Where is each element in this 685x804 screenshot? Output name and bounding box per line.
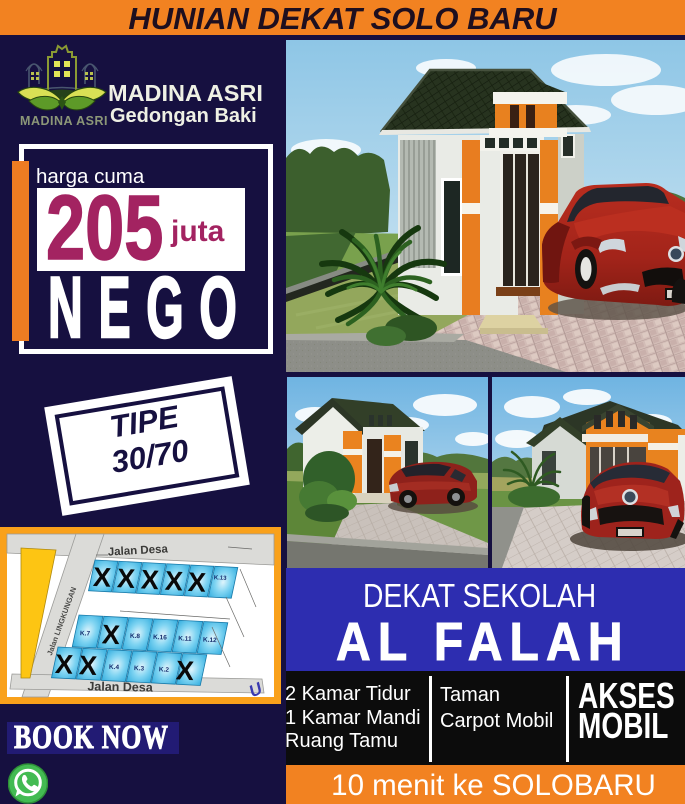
svg-text:X: X bbox=[54, 649, 74, 680]
svg-text:K.11: K.11 bbox=[178, 635, 192, 643]
svg-text:K.12: K.12 bbox=[203, 637, 217, 645]
svg-text:X: X bbox=[101, 619, 121, 650]
svg-text:K.3: K.3 bbox=[134, 665, 145, 673]
svg-text:X: X bbox=[116, 563, 136, 594]
svg-text:K.4: K.4 bbox=[109, 664, 120, 672]
svg-text:K.16: K.16 bbox=[153, 634, 167, 642]
svg-text:K.7: K.7 bbox=[80, 630, 91, 638]
svg-text:X: X bbox=[187, 567, 207, 598]
svg-text:X: X bbox=[92, 562, 112, 593]
svg-text:K.8: K.8 bbox=[130, 633, 141, 641]
svg-text:K.13: K.13 bbox=[214, 575, 228, 582]
svg-text:X: X bbox=[164, 566, 184, 597]
svg-text:K.2: K.2 bbox=[159, 666, 170, 674]
svg-text:X: X bbox=[140, 564, 160, 595]
svg-text:X: X bbox=[78, 650, 98, 681]
svg-text:X: X bbox=[175, 655, 195, 686]
